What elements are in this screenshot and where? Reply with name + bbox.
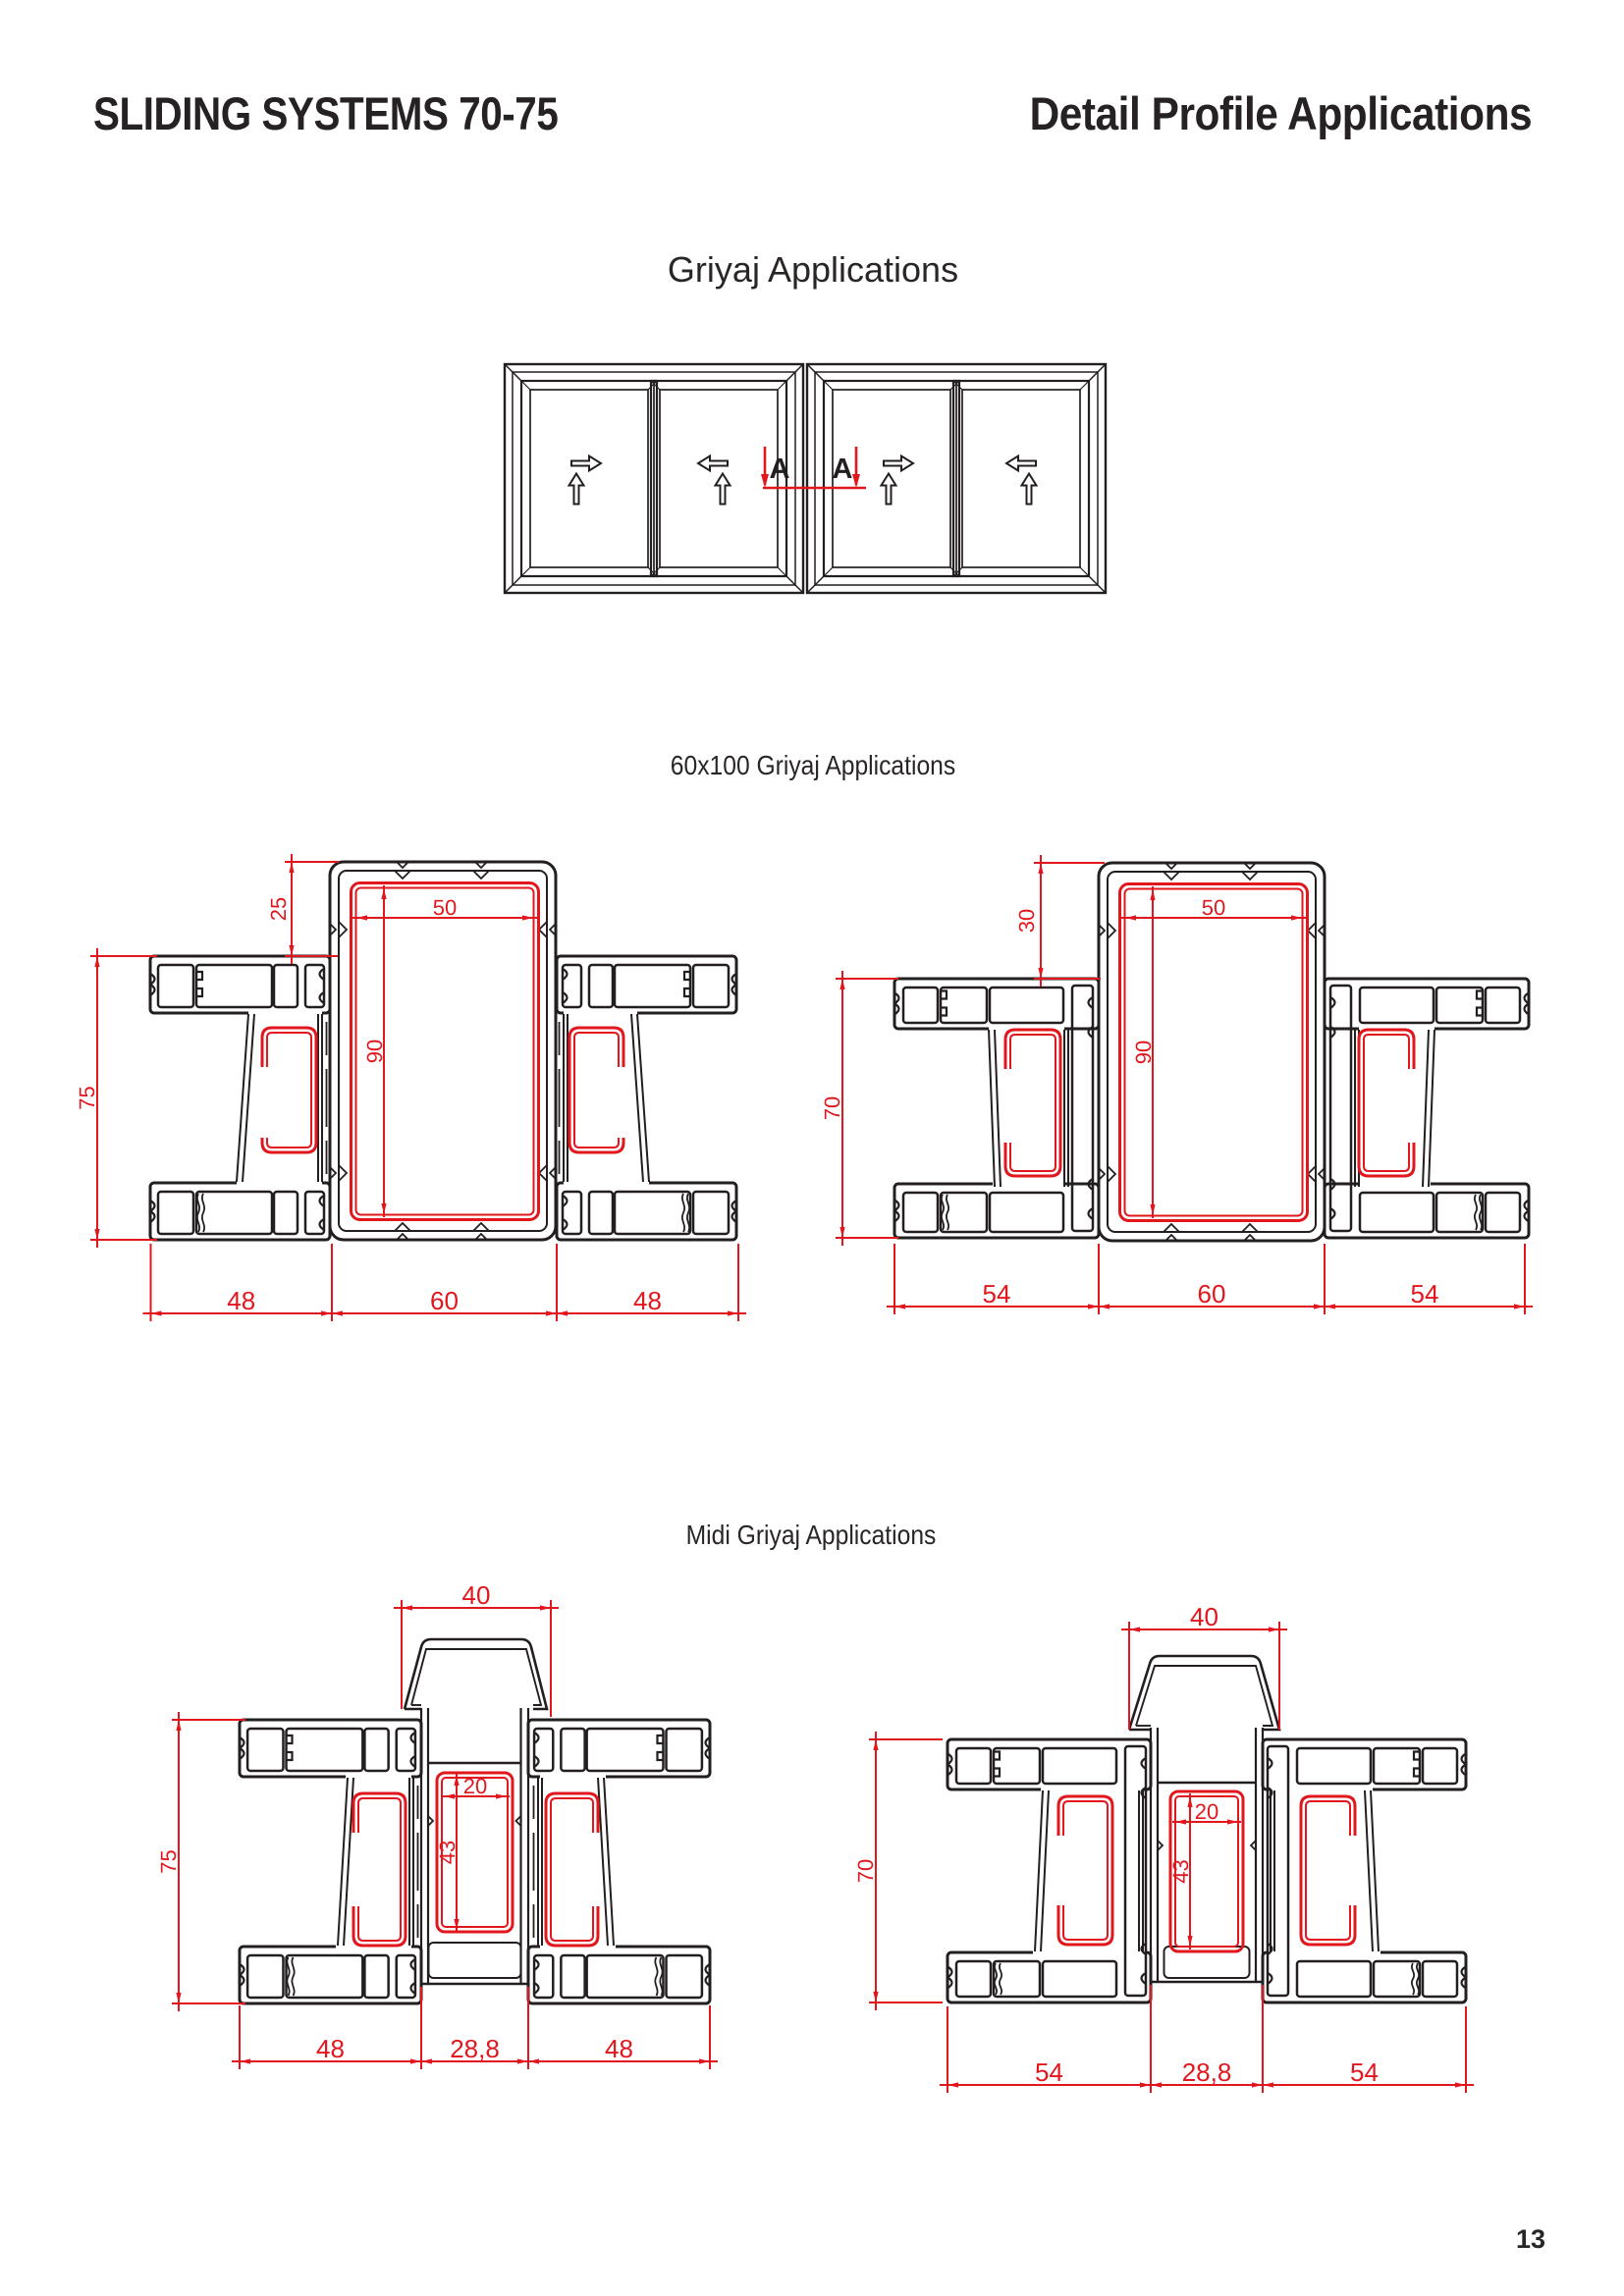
svg-text:75: 75 bbox=[75, 1086, 99, 1109]
svg-text:54: 54 bbox=[1035, 2057, 1063, 2087]
svg-text:54: 54 bbox=[1411, 1279, 1439, 1308]
svg-text:48: 48 bbox=[227, 1286, 255, 1315]
svg-text:40: 40 bbox=[1190, 1602, 1218, 1631]
svg-text:28,8: 28,8 bbox=[450, 2034, 500, 2063]
svg-text:60: 60 bbox=[430, 1286, 459, 1315]
svg-text:48: 48 bbox=[316, 2034, 345, 2063]
svg-text:48: 48 bbox=[605, 2034, 633, 2063]
svg-text:43: 43 bbox=[435, 1841, 460, 1864]
svg-text:43: 43 bbox=[1168, 1859, 1193, 1883]
svg-text:50: 50 bbox=[433, 895, 457, 920]
svg-text:A: A bbox=[833, 454, 853, 485]
svg-text:90: 90 bbox=[362, 1040, 387, 1063]
svg-text:20: 20 bbox=[463, 1774, 487, 1798]
svg-text:25: 25 bbox=[266, 897, 291, 921]
svg-text:54: 54 bbox=[1350, 2057, 1379, 2087]
svg-text:54: 54 bbox=[983, 1279, 1011, 1308]
svg-text:28,8: 28,8 bbox=[1182, 2057, 1232, 2087]
svg-text:40: 40 bbox=[462, 1580, 491, 1610]
svg-text:50: 50 bbox=[1202, 895, 1225, 920]
svg-text:30: 30 bbox=[1014, 909, 1039, 933]
svg-text:48: 48 bbox=[633, 1286, 662, 1315]
svg-text:70: 70 bbox=[853, 1859, 878, 1883]
svg-text:90: 90 bbox=[1131, 1041, 1156, 1064]
svg-text:75: 75 bbox=[156, 1849, 181, 1873]
svg-text:70: 70 bbox=[820, 1096, 844, 1120]
svg-text:20: 20 bbox=[1195, 1799, 1218, 1824]
svg-text:A: A bbox=[770, 454, 790, 485]
svg-text:60: 60 bbox=[1198, 1279, 1226, 1308]
